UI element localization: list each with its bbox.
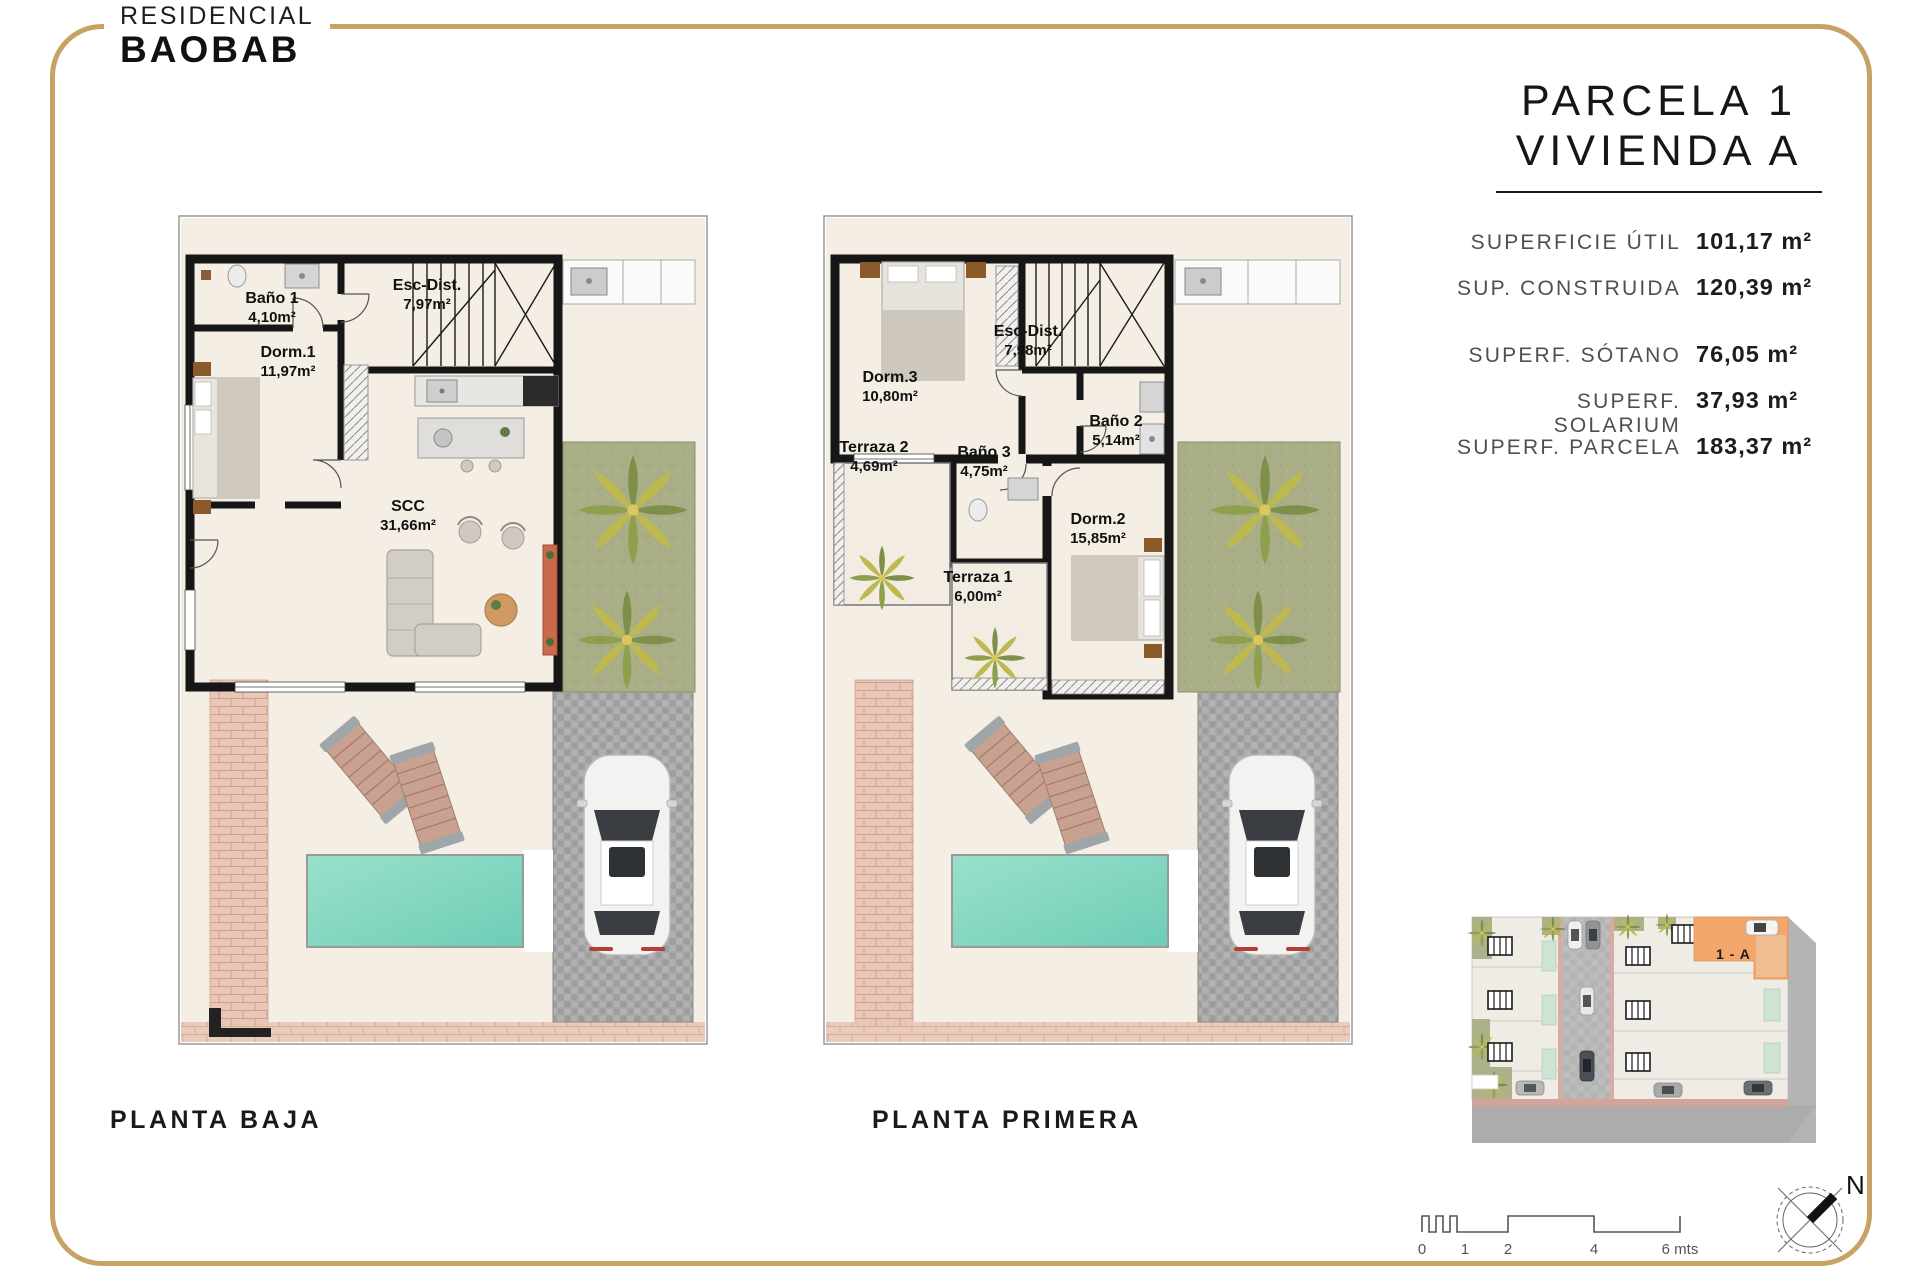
car-icon bbox=[1222, 755, 1322, 955]
terrace-plant-icon bbox=[850, 546, 915, 611]
nightstand-icon bbox=[966, 262, 986, 278]
spec-label: SUP. CONSTRUIDA bbox=[1448, 277, 1681, 301]
nightstand-icon bbox=[193, 362, 211, 376]
toilet-icon bbox=[969, 499, 987, 521]
stool-icon bbox=[489, 460, 501, 472]
room-label-escdist-p1: Esc-Dist. 7,98m² bbox=[994, 322, 1062, 360]
stool-icon bbox=[461, 460, 473, 472]
spec-value: 183,37 m² bbox=[1696, 433, 1820, 460]
utility-strip bbox=[1175, 260, 1340, 304]
nightstand-icon bbox=[1144, 644, 1162, 658]
room-label-terraza1: Terraza 1 6,00m² bbox=[943, 568, 1012, 606]
bed-icon bbox=[193, 378, 259, 498]
gate-wall bbox=[209, 1028, 271, 1037]
spec-sup-construida: SUP. CONSTRUIDA 120,39 m² bbox=[1448, 274, 1820, 320]
armchair-icon bbox=[502, 527, 524, 549]
title-vivienda: VIVIENDA A bbox=[1496, 126, 1822, 176]
vanity-icon bbox=[1140, 382, 1164, 412]
spec-superficie-util: SUPERFICIE ÚTIL 101,17 m² bbox=[1448, 228, 1820, 274]
unit-label: 1 - A bbox=[1716, 946, 1751, 962]
nightstand-icon bbox=[193, 500, 211, 514]
spec-superf-parcela: SUPERF. PARCELA 183,37 m² bbox=[1448, 433, 1820, 479]
scale-bar: 0 1 2 4 6 mts bbox=[1402, 1196, 1702, 1266]
spec-value: 101,17 m² bbox=[1696, 228, 1820, 255]
brick-path bbox=[210, 680, 268, 1025]
scale-tick-0: 0 bbox=[1418, 1241, 1426, 1258]
room-label-bano3: Baño 3 4,75m² bbox=[957, 443, 1010, 481]
ground-floor-plan bbox=[165, 210, 720, 1060]
vanity-icon bbox=[1008, 478, 1038, 500]
site-road-bottom bbox=[1472, 1105, 1816, 1143]
spec-label: SUPERF. SOLARIUM bbox=[1448, 390, 1681, 438]
caption-planta-baja: PLANTA BAJA bbox=[110, 1106, 322, 1135]
bed-icon bbox=[882, 262, 964, 380]
scale-tick-3: 4 bbox=[1590, 1241, 1598, 1258]
site-road-right bbox=[1788, 917, 1816, 1105]
spec-label: SUPERFICIE ÚTIL bbox=[1448, 231, 1681, 255]
palm-tree bbox=[1209, 591, 1308, 690]
site-sidewalk bbox=[1472, 1099, 1788, 1107]
wardrobe-icon bbox=[344, 365, 368, 460]
site-plan-thumbnail: 1 - A bbox=[1458, 903, 1853, 1153]
tv-sideboard bbox=[543, 545, 557, 655]
page-title: PARCELA 1 VIVIENDA A bbox=[1496, 76, 1822, 193]
room-label-escdist-pb: Esc-Dist. 7,97m² bbox=[393, 276, 461, 314]
stove-icon bbox=[523, 376, 558, 406]
railing bbox=[834, 463, 844, 605]
spec-value: 37,93 m² bbox=[1696, 387, 1820, 414]
sidewalk bbox=[826, 1022, 1350, 1042]
spec-value: 120,39 m² bbox=[1696, 274, 1820, 301]
spec-value: 76,05 m² bbox=[1696, 341, 1820, 368]
plant-icon bbox=[500, 427, 510, 437]
palm-tree bbox=[579, 456, 688, 565]
toilet-icon bbox=[228, 265, 246, 287]
door-opening bbox=[1042, 466, 1052, 496]
spec-superf-sotano: SUPERF. SÓTANO 76,05 m² bbox=[1448, 341, 1820, 387]
coffee-table-icon bbox=[485, 594, 517, 626]
caption-planta-primera: PLANTA PRIMERA bbox=[872, 1106, 1142, 1135]
title-parcela: PARCELA 1 bbox=[1496, 76, 1822, 126]
bed-icon bbox=[1072, 556, 1164, 640]
nightstand-icon bbox=[860, 262, 880, 278]
car-icon bbox=[577, 755, 677, 955]
brand-line2: BAOBAB bbox=[120, 31, 314, 68]
room-label-dorm2: Dorm.2 15,85m² bbox=[1070, 510, 1126, 548]
north-compass: N bbox=[1758, 1158, 1873, 1273]
brand-logo: RESIDENCIAL BAOBAB bbox=[104, 2, 330, 72]
room-label-bano2: Baño 2 5,14m² bbox=[1089, 412, 1142, 450]
spec-superf-solarium: SUPERF. SOLARIUM 37,93 m² bbox=[1448, 387, 1820, 433]
pool-deck bbox=[523, 850, 553, 952]
scale-tick-1: 1 bbox=[1461, 1241, 1469, 1258]
brick-path bbox=[855, 680, 913, 1025]
room-label-scc: SCC 31,66m² bbox=[380, 497, 436, 535]
nightstand-icon bbox=[1144, 538, 1162, 552]
room-label-dorm3: Dorm.3 10,80m² bbox=[862, 368, 918, 406]
first-floor-plan bbox=[810, 210, 1365, 1060]
palm-tree bbox=[1211, 456, 1320, 565]
terrace-plant-icon bbox=[964, 627, 1025, 688]
room-label-bano1: Baño 1 4,10m² bbox=[245, 289, 298, 327]
north-label: N bbox=[1846, 1170, 1865, 1200]
pool-deck bbox=[1168, 850, 1198, 952]
spec-label: SUPERF. SÓTANO bbox=[1448, 344, 1681, 368]
railing bbox=[952, 678, 1047, 690]
scale-tick-2: 2 bbox=[1504, 1241, 1512, 1258]
room-label-terraza2: Terraza 2 4,69m² bbox=[839, 438, 908, 476]
brand-line1: RESIDENCIAL bbox=[120, 4, 314, 29]
pool bbox=[307, 855, 523, 947]
spec-label: SUPERF. PARCELA bbox=[1448, 436, 1681, 460]
scale-tick-6mts: 6 mts bbox=[1662, 1241, 1699, 1258]
room-label-dorm1: Dorm.1 11,97m² bbox=[260, 343, 315, 381]
scale-bar-line bbox=[1422, 1216, 1680, 1232]
utility-strip bbox=[563, 260, 695, 304]
terrace2 bbox=[834, 463, 950, 610]
pool bbox=[952, 855, 1168, 947]
railing bbox=[1052, 680, 1164, 694]
compass-needle bbox=[1807, 1193, 1837, 1223]
surface-specs: SUPERFICIE ÚTIL 101,17 m² SUP. CONSTRUID… bbox=[1448, 228, 1820, 479]
armchair-icon bbox=[459, 521, 481, 543]
palm-tree bbox=[578, 591, 677, 690]
brochure-page: { "brand": {"line1": "RESIDENCIAL", "lin… bbox=[0, 0, 1920, 1280]
